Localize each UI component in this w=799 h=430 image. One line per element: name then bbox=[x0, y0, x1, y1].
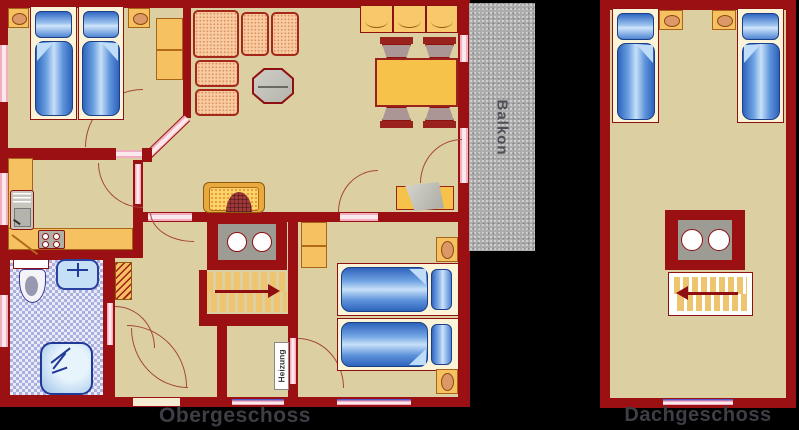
dining-table-icon bbox=[375, 58, 458, 107]
balcony: Balkon bbox=[469, 3, 535, 251]
floor-plan-image: Heizung bbox=[0, 0, 799, 430]
kitchen-sink-icon bbox=[10, 190, 34, 230]
sofa-cushion bbox=[241, 12, 269, 56]
sideboard-cabinet bbox=[360, 5, 393, 33]
nightstand-icon bbox=[8, 8, 29, 28]
flue-circle bbox=[708, 229, 730, 251]
stairs-arrow bbox=[215, 290, 270, 293]
lamp-icon bbox=[133, 13, 148, 25]
nightstand-icon bbox=[712, 10, 736, 30]
chair-icon bbox=[423, 121, 456, 128]
stairs-arrow bbox=[686, 292, 738, 295]
door-opening bbox=[340, 213, 378, 221]
chair-icon bbox=[382, 44, 411, 58]
cooktop-icon bbox=[38, 230, 65, 249]
wardrobe-icon bbox=[156, 18, 183, 80]
chair-icon bbox=[382, 107, 411, 121]
heating-room-label-box: Heizung bbox=[274, 342, 289, 390]
wardrobe-icon bbox=[301, 222, 327, 268]
og-floor-label: Obergeschoss bbox=[0, 404, 470, 428]
nightstand-icon bbox=[436, 237, 458, 262]
sofa-corner bbox=[193, 10, 239, 58]
window-icon bbox=[0, 173, 8, 225]
wall-corner-piece bbox=[142, 148, 152, 162]
heating-room-label: Heizung bbox=[277, 349, 287, 382]
stairs-arrow-head bbox=[268, 284, 280, 298]
window-icon bbox=[0, 45, 8, 102]
nightstand-icon bbox=[128, 8, 150, 28]
bed-pillow bbox=[431, 324, 452, 365]
wall-stairs-left bbox=[199, 270, 207, 318]
door-opening bbox=[116, 150, 142, 158]
coffee-table-icon bbox=[252, 68, 294, 104]
flue-circle bbox=[681, 229, 703, 251]
sofa-cushion bbox=[195, 60, 239, 87]
chair-icon bbox=[425, 44, 454, 58]
nightstand-icon bbox=[659, 10, 683, 30]
flue-circle bbox=[252, 232, 272, 252]
chair-icon bbox=[423, 37, 456, 44]
bed-pillow bbox=[35, 11, 72, 38]
door-opening bbox=[290, 338, 296, 384]
bed-pillow bbox=[742, 13, 779, 40]
chair-icon bbox=[380, 121, 413, 128]
sideboard-cabinet bbox=[426, 5, 458, 33]
radiator-icon bbox=[115, 262, 132, 300]
chair-icon bbox=[425, 107, 454, 121]
bed-pillow bbox=[431, 269, 452, 310]
shower-icon bbox=[40, 342, 93, 395]
washbasin-icon bbox=[56, 259, 99, 290]
balcony-label: Balkon bbox=[493, 99, 510, 155]
chair-icon bbox=[380, 37, 413, 44]
nightstand-icon bbox=[436, 369, 458, 394]
lamp-icon bbox=[441, 241, 454, 259]
bed-pillow bbox=[83, 11, 119, 38]
window-icon bbox=[460, 35, 468, 62]
lamp-icon bbox=[12, 13, 27, 25]
lamp-icon bbox=[664, 15, 680, 27]
bed-pillow bbox=[617, 13, 654, 40]
wall-heating-left bbox=[217, 326, 227, 397]
window-icon bbox=[0, 295, 8, 347]
sofa-cushion bbox=[271, 12, 299, 56]
sofa-cushion bbox=[195, 89, 239, 116]
lamp-icon bbox=[441, 373, 454, 391]
dg-floor-label: Dachgeschoss bbox=[600, 404, 796, 427]
lamp-icon bbox=[717, 15, 733, 27]
wall-stairs-bottom bbox=[199, 314, 298, 326]
wall-bedroom1-right bbox=[183, 8, 191, 118]
flue-circle bbox=[227, 232, 247, 252]
sideboard-cabinet bbox=[393, 5, 426, 33]
toilet-tank bbox=[13, 259, 49, 269]
door-opening bbox=[107, 303, 113, 345]
stairs-arrow-head bbox=[676, 286, 688, 300]
